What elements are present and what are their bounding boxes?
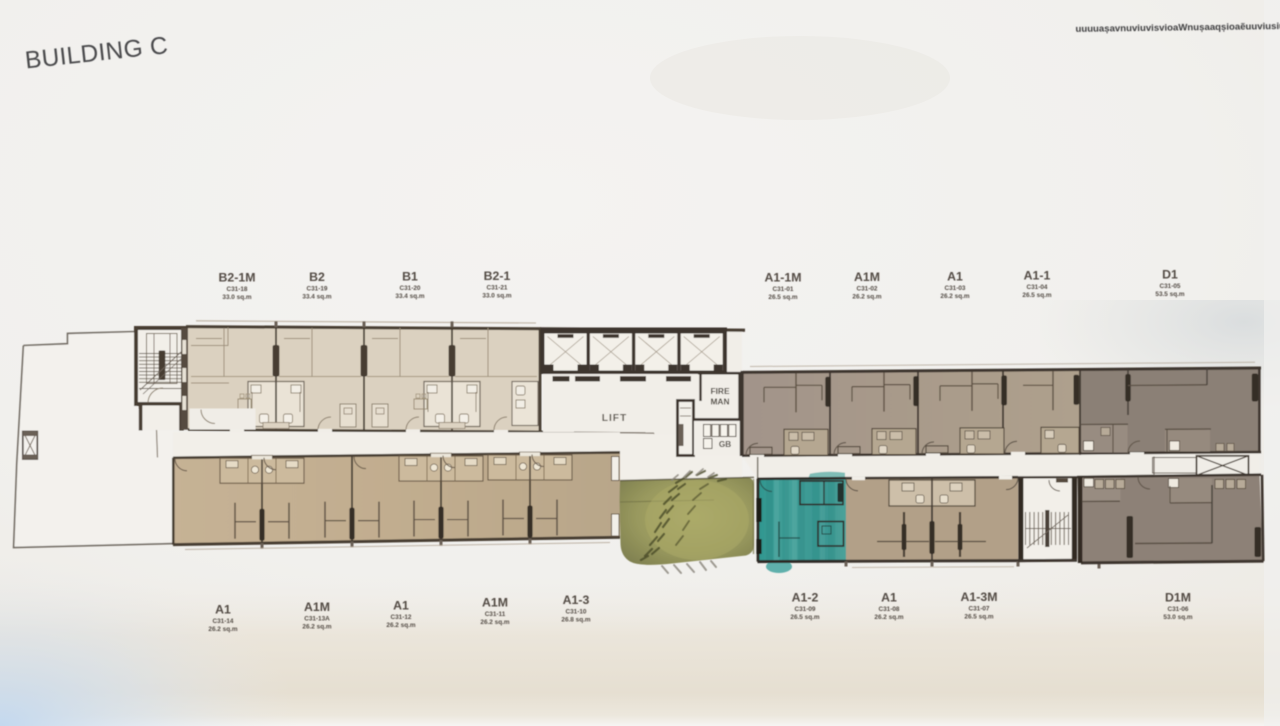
svg-text:53.0 sq.m: 53.0 sq.m (1163, 614, 1192, 621)
svg-text:A1-2: A1-2 (792, 591, 819, 605)
svg-text:D1: D1 (1162, 268, 1178, 282)
svg-text:A1M: A1M (304, 600, 330, 614)
svg-text:26.5 sq.m: 26.5 sq.m (964, 614, 993, 621)
svg-text:C31-01: C31-01 (773, 286, 794, 293)
svg-text:LIFT: LIFT (602, 413, 628, 424)
svg-text:C31-11: C31-11 (485, 611, 506, 618)
svg-text:26.2 sq.m: 26.2 sq.m (940, 293, 969, 300)
svg-text:A1M: A1M (854, 270, 880, 284)
svg-text:53.5 sq.m: 53.5 sq.m (1155, 291, 1184, 298)
svg-text:B1: B1 (402, 270, 418, 284)
svg-text:B2: B2 (309, 270, 325, 284)
svg-text:C31-18: C31-18 (227, 286, 248, 293)
svg-text:C31-19: C31-19 (307, 286, 328, 293)
svg-text:A1: A1 (393, 599, 409, 613)
svg-text:A1M: A1M (482, 596, 508, 610)
svg-text:MAN: MAN (710, 397, 729, 407)
svg-text:C31-02: C31-02 (857, 286, 878, 293)
svg-text:C31-09: C31-09 (795, 606, 816, 613)
svg-text:A1-3: A1-3 (563, 593, 590, 607)
svg-text:C31-07: C31-07 (969, 606, 990, 613)
svg-text:D1M: D1M (1165, 591, 1191, 605)
svg-text:A1: A1 (215, 603, 231, 617)
svg-text:FIRE: FIRE (710, 386, 729, 396)
svg-text:33.0 sq.m: 33.0 sq.m (482, 293, 511, 300)
svg-text:26.8 sq.m: 26.8 sq.m (561, 617, 590, 624)
svg-text:26.2 sq.m: 26.2 sq.m (852, 294, 881, 301)
svg-text:A1: A1 (947, 270, 963, 284)
svg-text:A1-1M: A1-1M (765, 271, 802, 285)
svg-text:33.4 sq.m: 33.4 sq.m (302, 294, 331, 301)
svg-text:26.2 sq.m: 26.2 sq.m (302, 624, 331, 631)
svg-text:A1-3M: A1-3M (961, 590, 998, 604)
svg-text:A1: A1 (881, 591, 897, 605)
svg-text:33.0 sq.m: 33.0 sq.m (222, 294, 251, 301)
svg-text:C31-21: C31-21 (487, 285, 508, 292)
svg-text:B2-1: B2-1 (484, 269, 511, 283)
svg-text:26.2 sq.m: 26.2 sq.m (874, 614, 903, 621)
svg-text:A1-1: A1-1 (1024, 269, 1051, 283)
svg-text:26.5 sq.m: 26.5 sq.m (1022, 292, 1051, 299)
svg-text:B2-1M: B2-1M (219, 271, 256, 285)
svg-text:C31-12: C31-12 (391, 614, 412, 621)
svg-text:26.5 sq.m: 26.5 sq.m (768, 294, 797, 301)
svg-text:C31-14: C31-14 (213, 618, 234, 625)
svg-text:C31-03: C31-03 (945, 285, 966, 292)
svg-text:C31-10: C31-10 (566, 609, 587, 616)
svg-text:26.5 sq.m: 26.5 sq.m (790, 614, 819, 621)
svg-text:33.4 sq.m: 33.4 sq.m (395, 293, 424, 300)
svg-text:26.2 sq.m: 26.2 sq.m (208, 626, 237, 633)
svg-text:26.2 sq.m: 26.2 sq.m (480, 619, 509, 626)
svg-text:C31-04: C31-04 (1027, 284, 1048, 291)
svg-text:26.2 sq.m: 26.2 sq.m (386, 622, 415, 629)
svg-text:C31-13A: C31-13A (304, 616, 330, 623)
svg-text:C31-20: C31-20 (400, 285, 421, 292)
svg-text:C31-05: C31-05 (1160, 283, 1181, 290)
svg-text:C31-08: C31-08 (879, 606, 900, 613)
svg-text:GB: GB (719, 440, 731, 449)
svg-text:C31-06: C31-06 (1168, 606, 1189, 613)
